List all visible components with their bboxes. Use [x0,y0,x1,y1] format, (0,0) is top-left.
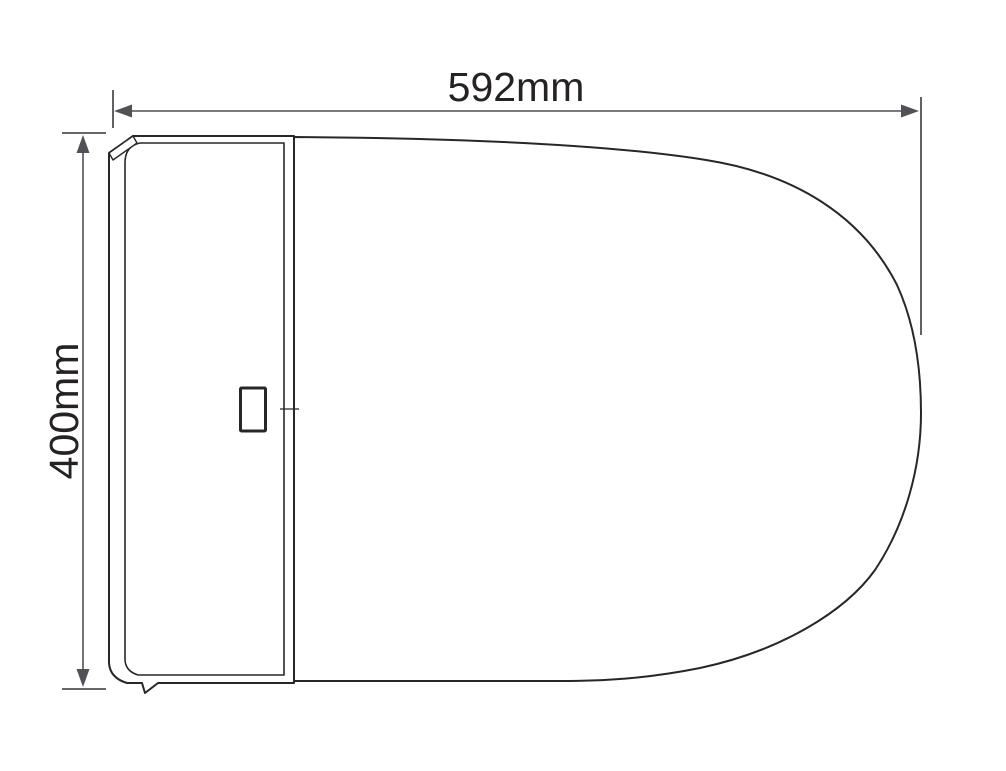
arrowhead-up-icon [77,135,90,153]
bowl-lid-outline [294,137,921,681]
product-outline-group [109,136,921,693]
toilet-top-view-diagram: 592mm 400mm [0,0,1006,771]
depth-dimension: 400mm [41,133,106,689]
width-dimension-label: 592mm [448,64,585,110]
arrowhead-right-icon [901,105,919,118]
arrowhead-left-icon [114,105,132,118]
depth-dimension-label: 400mm [41,343,87,480]
technical-drawing-canvas: 592mm 400mm [0,0,1006,771]
arrowhead-down-icon [77,669,90,687]
flush-button [241,388,266,431]
